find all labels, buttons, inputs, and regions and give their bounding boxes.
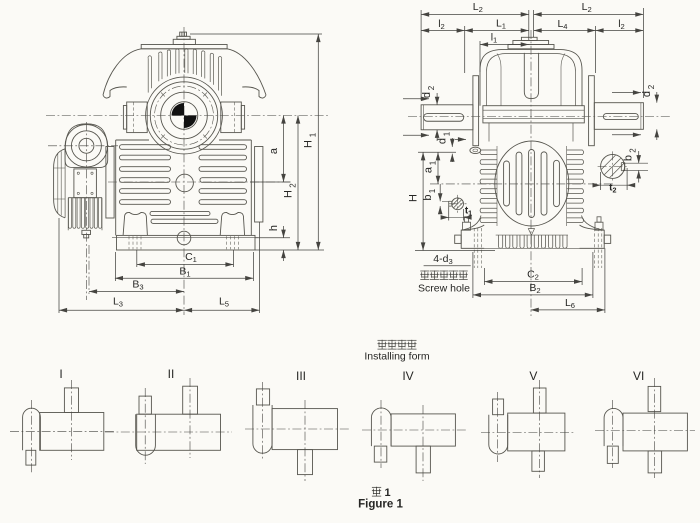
svg-text:1: 1 [428,188,437,193]
svg-text:h: h [268,225,280,231]
svg-text:2: 2 [289,183,298,188]
svg-text:b: b [623,155,635,161]
svg-text:2: 2 [629,148,638,153]
svg-text:Figure 1: Figure 1 [358,499,403,511]
svg-text:d: d [437,138,449,144]
svg-text:II: II [168,367,175,381]
svg-text:H: H [283,190,295,198]
svg-text:VI: VI [633,369,644,383]
svg-text:Installing form: Installing form [364,351,430,363]
svg-text:1: 1 [429,160,438,165]
svg-text:d: d [641,91,653,97]
svg-text:Screw hole: Screw hole [418,283,470,295]
svg-text:b: b [422,194,434,200]
svg-text:H: H [408,194,420,202]
svg-text:d: d [421,92,433,98]
svg-text:2: 2 [647,84,656,89]
svg-text:1: 1 [443,131,452,136]
svg-text:I: I [59,367,62,381]
svg-text:a: a [423,166,435,173]
svg-text:2: 2 [427,85,436,90]
svg-text:IV: IV [402,369,413,383]
svg-text:H: H [303,140,315,148]
svg-text:V: V [529,369,537,383]
svg-text:a: a [268,147,280,154]
svg-text:III: III [296,369,306,383]
svg-text:1: 1 [309,132,318,137]
svg-text:1: 1 [384,487,390,499]
